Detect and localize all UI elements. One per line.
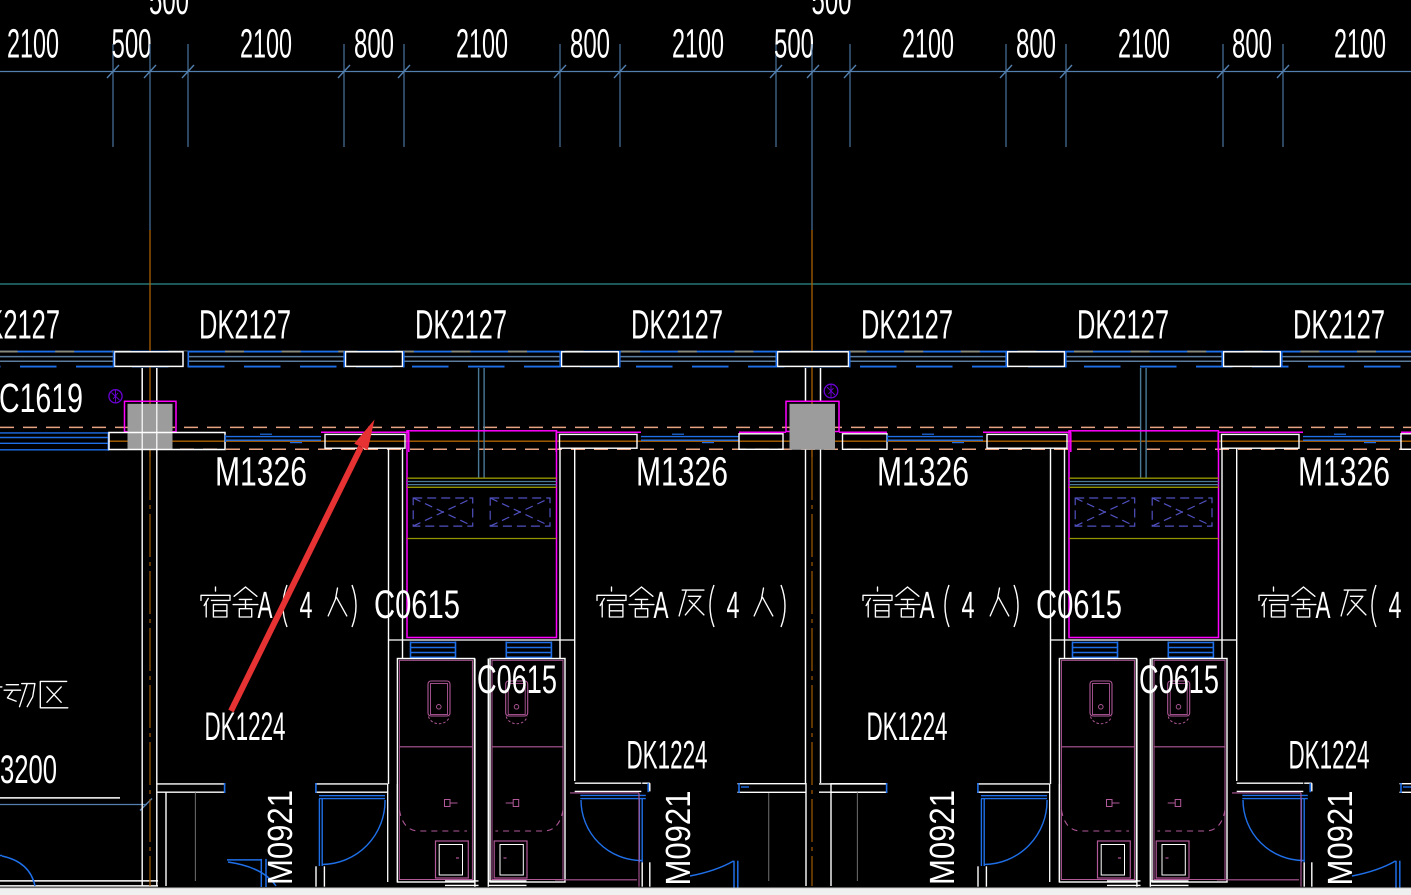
svg-text:M1326: M1326: [636, 449, 728, 495]
svg-text:800: 800: [570, 21, 610, 67]
svg-text:DK2127: DK2127: [631, 302, 723, 348]
svg-text:M0921: M0921: [659, 791, 698, 886]
svg-text:A: A: [920, 585, 935, 627]
svg-text:4: 4: [727, 585, 740, 627]
svg-text:DK2127: DK2127: [199, 302, 291, 348]
svg-text:DK1224: DK1224: [205, 705, 286, 749]
svg-text:500: 500: [774, 21, 814, 67]
svg-text:4: 4: [1389, 585, 1402, 627]
svg-text:M1326: M1326: [877, 449, 969, 495]
svg-text:C0615: C0615: [374, 583, 460, 627]
svg-text:500: 500: [149, 0, 189, 23]
svg-text:M0921: M0921: [1321, 791, 1360, 886]
svg-text:4: 4: [962, 585, 975, 627]
svg-text:800: 800: [1016, 21, 1056, 67]
svg-text:DK2127: DK2127: [1077, 302, 1169, 348]
svg-text:DK1224: DK1224: [627, 734, 708, 778]
svg-text:M0921: M0921: [261, 790, 300, 885]
svg-text:2100: 2100: [240, 21, 292, 67]
svg-text:800: 800: [354, 21, 394, 67]
svg-text:M1326: M1326: [1298, 449, 1390, 495]
svg-text:500: 500: [112, 21, 152, 67]
svg-text:800: 800: [1232, 21, 1272, 67]
svg-text:2100: 2100: [1118, 21, 1170, 67]
svg-text:2100: 2100: [672, 21, 724, 67]
svg-text:DK2127: DK2127: [1293, 302, 1385, 348]
svg-text:4: 4: [300, 585, 313, 627]
svg-text:2100: 2100: [456, 21, 508, 67]
svg-text:M1326: M1326: [215, 449, 307, 495]
svg-text:A: A: [1316, 585, 1331, 627]
svg-text:C0615: C0615: [1036, 583, 1122, 627]
svg-text:DK1224: DK1224: [867, 705, 948, 749]
svg-text:DK2127: DK2127: [415, 302, 507, 348]
svg-text:2100: 2100: [1334, 21, 1386, 67]
svg-text:A: A: [654, 585, 669, 627]
svg-text:500: 500: [812, 0, 852, 23]
svg-text:DK1224: DK1224: [1289, 734, 1370, 778]
svg-text:C0615: C0615: [477, 658, 557, 702]
svg-text:3200: 3200: [0, 748, 57, 792]
svg-text:DK2127: DK2127: [0, 302, 60, 348]
svg-text:M0921: M0921: [923, 790, 962, 885]
svg-text:2100: 2100: [902, 21, 954, 67]
svg-text:2100: 2100: [7, 21, 59, 67]
svg-text:A: A: [258, 585, 273, 627]
svg-text:C1619: C1619: [0, 375, 83, 421]
svg-text:DK2127: DK2127: [861, 302, 953, 348]
svg-text:C0615: C0615: [1139, 658, 1219, 702]
